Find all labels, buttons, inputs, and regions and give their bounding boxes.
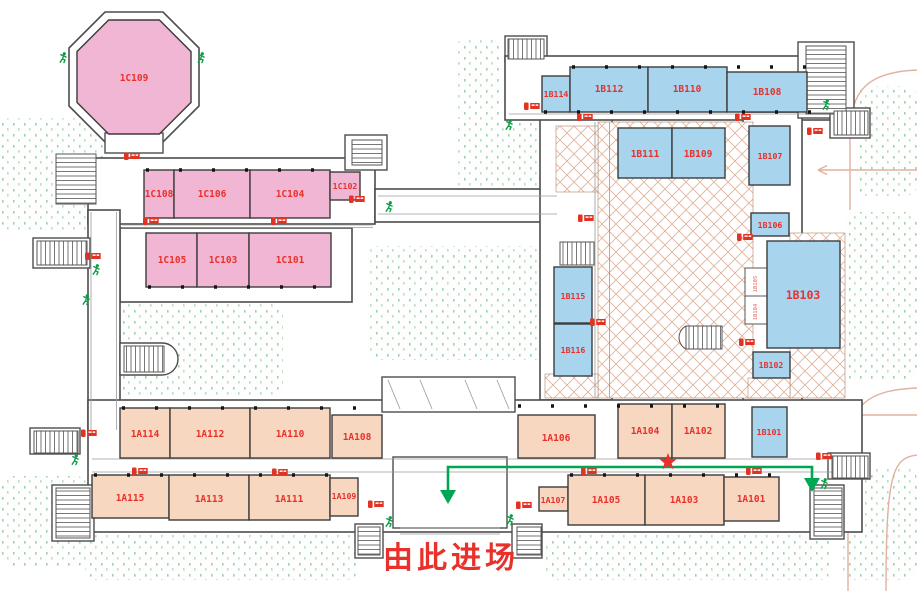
room-label-1B106: 1B106 xyxy=(758,220,783,230)
floor-plan-svg: 1C109 1C108 1C106 1C104 1C102 1C105 1C10… xyxy=(0,0,917,591)
room-label-1B112: 1B112 xyxy=(595,84,624,95)
room-label-1C102: 1C102 xyxy=(333,181,358,191)
room-label-1B110: 1B110 xyxy=(673,84,702,95)
fire-extinguisher-icon xyxy=(578,215,594,223)
room-label-1B116: 1B116 xyxy=(561,345,586,355)
room-label-1B107: 1B107 xyxy=(758,151,783,161)
fire-extinguisher-icon xyxy=(349,196,365,204)
room-label-1B114: 1B114 xyxy=(544,89,569,99)
room-label-1B115: 1B115 xyxy=(561,291,586,301)
exit-runner-icon xyxy=(72,454,78,465)
entrance-label: 由此进场 xyxy=(383,541,519,576)
room-label-1A115: 1A115 xyxy=(116,493,145,504)
fire-extinguisher-icon xyxy=(816,453,832,461)
room-label-1C109: 1C109 xyxy=(120,73,149,84)
room-label-1C105: 1C105 xyxy=(158,255,187,266)
room-label-1B105: 1B105 xyxy=(753,276,759,293)
room-label-1A104: 1A104 xyxy=(631,426,660,437)
floor-plan-canvas: 1C109 1C108 1C106 1C104 1C102 1C105 1C10… xyxy=(0,0,917,591)
room-label-1A103: 1A103 xyxy=(670,495,699,506)
room-label-1A107: 1A107 xyxy=(541,495,566,505)
fire-extinguisher-icon xyxy=(516,502,532,510)
fire-extinguisher-icon xyxy=(746,468,762,476)
room-label-1B102: 1B102 xyxy=(759,360,784,370)
room-label-1A112: 1A112 xyxy=(196,429,225,440)
room-label-1A109: 1A109 xyxy=(332,491,357,501)
room-label-1B104: 1B104 xyxy=(753,303,759,320)
room-label-1A113: 1A113 xyxy=(195,494,224,505)
room-label-1A111: 1A111 xyxy=(275,494,304,505)
fire-extinguisher-icon xyxy=(143,218,159,226)
room-label-1A101: 1A101 xyxy=(737,494,766,505)
room-label-1C106: 1C106 xyxy=(198,189,227,200)
fire-extinguisher-icon xyxy=(124,153,140,161)
room-label-1A108: 1A108 xyxy=(343,432,372,443)
fire-extinguisher-icon xyxy=(577,114,593,122)
exit-runner-icon xyxy=(83,294,89,305)
fire-extinguisher-icon xyxy=(85,253,101,261)
fire-extinguisher-icon xyxy=(524,103,540,111)
fire-extinguisher-icon xyxy=(81,430,97,438)
fire-extinguisher-icon xyxy=(368,501,384,509)
exit-runner-icon xyxy=(60,52,66,63)
fire-extinguisher-icon xyxy=(737,234,753,242)
fire-extinguisher-icon xyxy=(807,128,823,136)
room-label-1C103: 1C103 xyxy=(209,255,238,266)
fire-extinguisher-icon xyxy=(272,469,288,477)
room-label-1B109: 1B109 xyxy=(684,149,713,160)
fire-extinguisher-icon xyxy=(581,468,597,476)
fire-extinguisher-icon xyxy=(739,339,755,347)
room-label-1B101: 1B101 xyxy=(757,427,782,437)
fire-extinguisher-icon xyxy=(271,218,287,226)
room-label-1B103: 1B103 xyxy=(786,288,821,302)
fire-extinguisher-icon xyxy=(590,319,606,327)
room-label-1B108: 1B108 xyxy=(753,87,782,98)
room-label-1C101: 1C101 xyxy=(276,255,305,266)
fire-extinguisher-icon xyxy=(132,468,148,476)
room-label-1A106: 1A106 xyxy=(542,433,571,444)
north-entrance-canopy xyxy=(382,377,515,412)
fire-extinguisher-icon xyxy=(735,114,751,122)
room-label-1A110: 1A110 xyxy=(276,429,305,440)
room-label-1C104: 1C104 xyxy=(276,189,305,200)
room-label-1A102: 1A102 xyxy=(684,426,713,437)
room-label-1B111: 1B111 xyxy=(631,149,660,160)
room-label-1A105: 1A105 xyxy=(592,495,621,506)
room-label-1A114: 1A114 xyxy=(131,429,160,440)
room-label-1C108: 1C108 xyxy=(145,189,174,200)
